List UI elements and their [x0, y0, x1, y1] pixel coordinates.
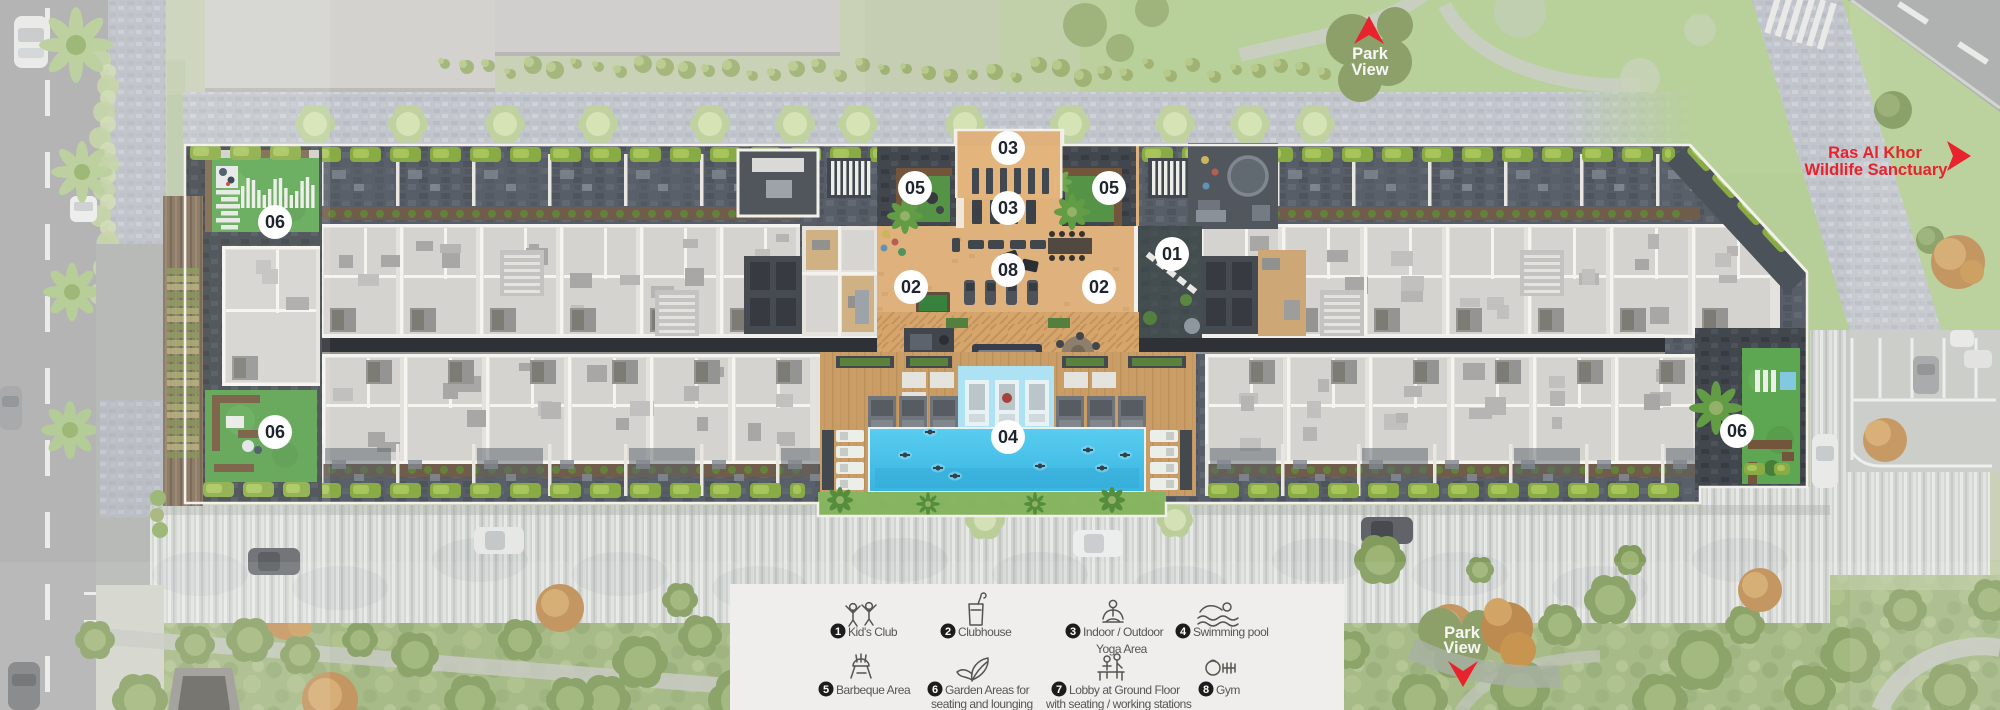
svg-text:03: 03: [998, 198, 1018, 218]
svg-text:4: 4: [1180, 626, 1187, 638]
svg-text:Gym: Gym: [1216, 683, 1240, 697]
svg-text:04: 04: [998, 427, 1018, 447]
svg-text:03: 03: [998, 138, 1018, 158]
svg-text:Wildlife Sanctuary: Wildlife Sanctuary: [1805, 161, 1949, 179]
svg-text:Kid's Club: Kid's Club: [848, 625, 898, 639]
svg-text:05: 05: [1099, 178, 1119, 198]
svg-text:View: View: [1443, 639, 1480, 657]
svg-text:seating and lounging: seating and lounging: [931, 697, 1033, 710]
svg-text:02: 02: [901, 277, 921, 297]
svg-text:Ras Al Khor: Ras Al Khor: [1828, 144, 1922, 162]
svg-text:2: 2: [945, 626, 951, 638]
svg-text:Clubhouse: Clubhouse: [958, 625, 1012, 639]
svg-text:06: 06: [1727, 421, 1747, 441]
svg-text:8: 8: [1203, 684, 1209, 696]
svg-text:08: 08: [998, 260, 1018, 280]
svg-text:06: 06: [265, 422, 285, 442]
svg-text:Yoga Area: Yoga Area: [1096, 642, 1148, 656]
svg-text:Garden Areas for: Garden Areas for: [945, 683, 1030, 697]
svg-text:5: 5: [823, 684, 829, 696]
svg-text:01: 01: [1162, 244, 1182, 264]
svg-text:Lobby at Ground Floor: Lobby at Ground Floor: [1069, 683, 1180, 697]
svg-text:7: 7: [1056, 684, 1062, 696]
svg-text:View: View: [1351, 61, 1388, 79]
svg-text:06: 06: [265, 212, 285, 232]
svg-text:Swimming pool: Swimming pool: [1193, 625, 1269, 639]
svg-text:Barbeque Area: Barbeque Area: [836, 683, 911, 697]
svg-text:6: 6: [932, 684, 938, 696]
svg-text:1: 1: [835, 626, 841, 638]
svg-text:3: 3: [1070, 626, 1076, 638]
svg-text:Indoor / Outdoor: Indoor / Outdoor: [1083, 625, 1164, 639]
svg-text:05: 05: [905, 178, 925, 198]
svg-text:with seating / working station: with seating / working stations: [1045, 697, 1192, 710]
svg-text:02: 02: [1089, 277, 1109, 297]
